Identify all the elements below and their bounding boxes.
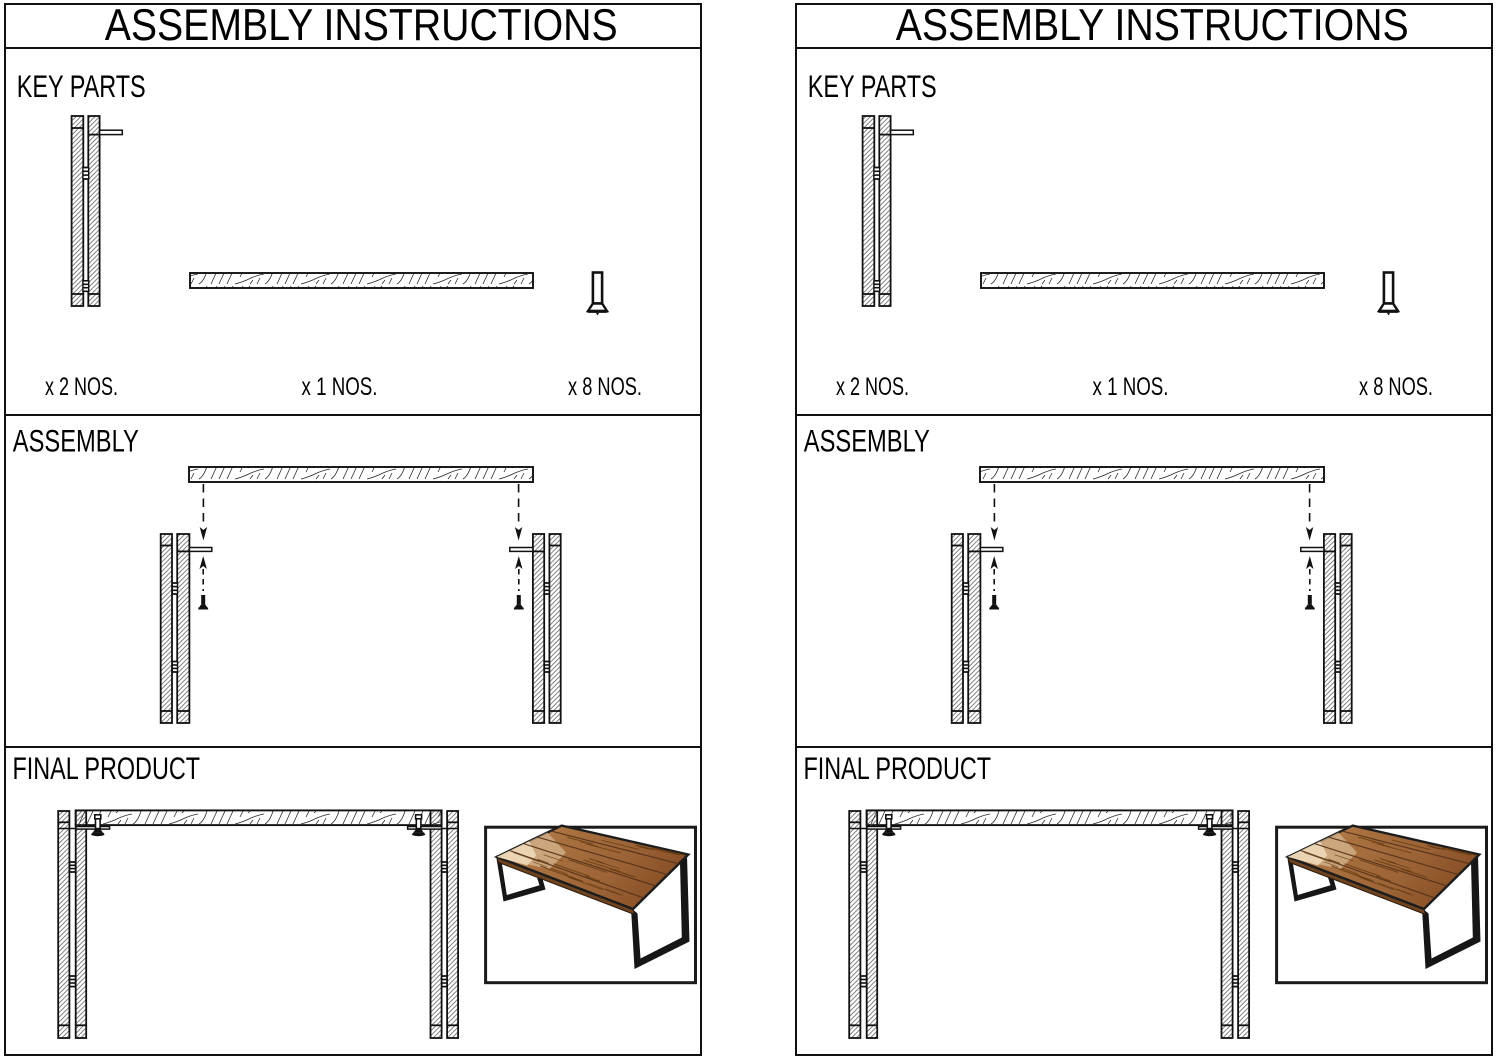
svg-text:FINAL PRODUCT: FINAL PRODUCT: [804, 750, 992, 786]
svg-text:x 8 NOS.: x 8 NOS.: [568, 373, 642, 401]
svg-text:FINAL PRODUCT: FINAL PRODUCT: [13, 750, 201, 786]
svg-text:ASSEMBLY INSTRUCTIONS: ASSEMBLY INSTRUCTIONS: [105, 1, 618, 50]
svg-text:KEY PARTS: KEY PARTS: [17, 68, 146, 104]
svg-text:x 1 NOS.: x 1 NOS.: [1093, 373, 1169, 401]
svg-text:ASSEMBLY INSTRUCTIONS: ASSEMBLY INSTRUCTIONS: [896, 1, 1409, 50]
svg-text:x 8 NOS.: x 8 NOS.: [1359, 373, 1433, 401]
svg-text:KEY PARTS: KEY PARTS: [808, 68, 937, 104]
svg-text:x 2 NOS.: x 2 NOS.: [45, 373, 118, 401]
svg-text:x 2 NOS.: x 2 NOS.: [836, 373, 909, 401]
svg-text:ASSEMBLY: ASSEMBLY: [13, 423, 139, 459]
svg-text:ASSEMBLY: ASSEMBLY: [804, 423, 930, 459]
svg-text:x 1 NOS.: x 1 NOS.: [302, 373, 378, 401]
